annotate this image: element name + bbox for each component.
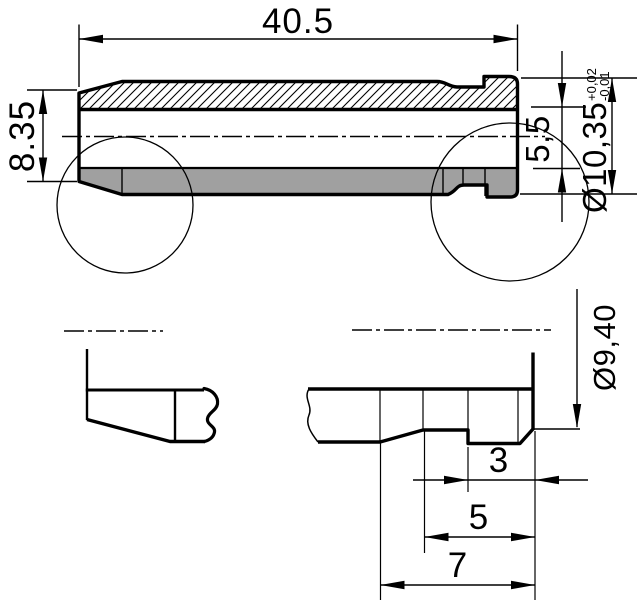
tolerance-lower: -0,01 [597,71,612,101]
dimension-step-width: 3 [413,431,588,600]
arrowhead [511,581,535,589]
break-line [307,389,318,442]
dimension-value-outer-diameter: Ø10,35 [576,102,613,213]
dimension-detail-diameter: Ø9,40 [533,289,622,429]
detail-circle-right [431,123,589,281]
main-section-view [57,77,589,282]
arrowhead [381,581,405,589]
arrowhead [79,35,103,43]
dimension-groove-width: 5 [425,431,536,553]
arrowhead [494,35,518,43]
technical-drawing: 40.5 8.35 5,5 Ø10,35 +0,02 -0,01 [0,0,640,606]
arrowhead [558,169,566,193]
dimension-height-left: 8.35 [3,90,77,182]
arrowhead [425,533,449,541]
dimension-value-groove-width: 5 [469,498,489,537]
dimension-value-height-left: 8.35 [3,100,42,172]
dimension-collar-width: 7 [381,443,536,600]
arrowhead [511,533,535,541]
arrowhead [535,476,559,484]
tip-bottom-edge [87,420,205,442]
arrowhead [444,476,468,484]
detail-view-right-end [307,330,551,444]
dimension-value-detail-diameter: Ø9,40 [587,304,622,391]
arrowhead [558,83,566,107]
dimension-length: 40.5 [79,2,518,87]
detail-view-left-tip [64,331,218,442]
arrowhead [573,404,581,428]
dimension-value-length: 40.5 [262,2,334,41]
dimension-value-bore-height: 5,5 [519,115,556,162]
technical-drawing-canvas: 40.5 8.35 5,5 Ø10,35 +0,02 -0,01 [0,0,640,606]
dimension-value-collar-width: 7 [448,546,468,585]
dimension-value-step-width: 3 [489,441,509,480]
tip-rounded-end [204,389,218,442]
